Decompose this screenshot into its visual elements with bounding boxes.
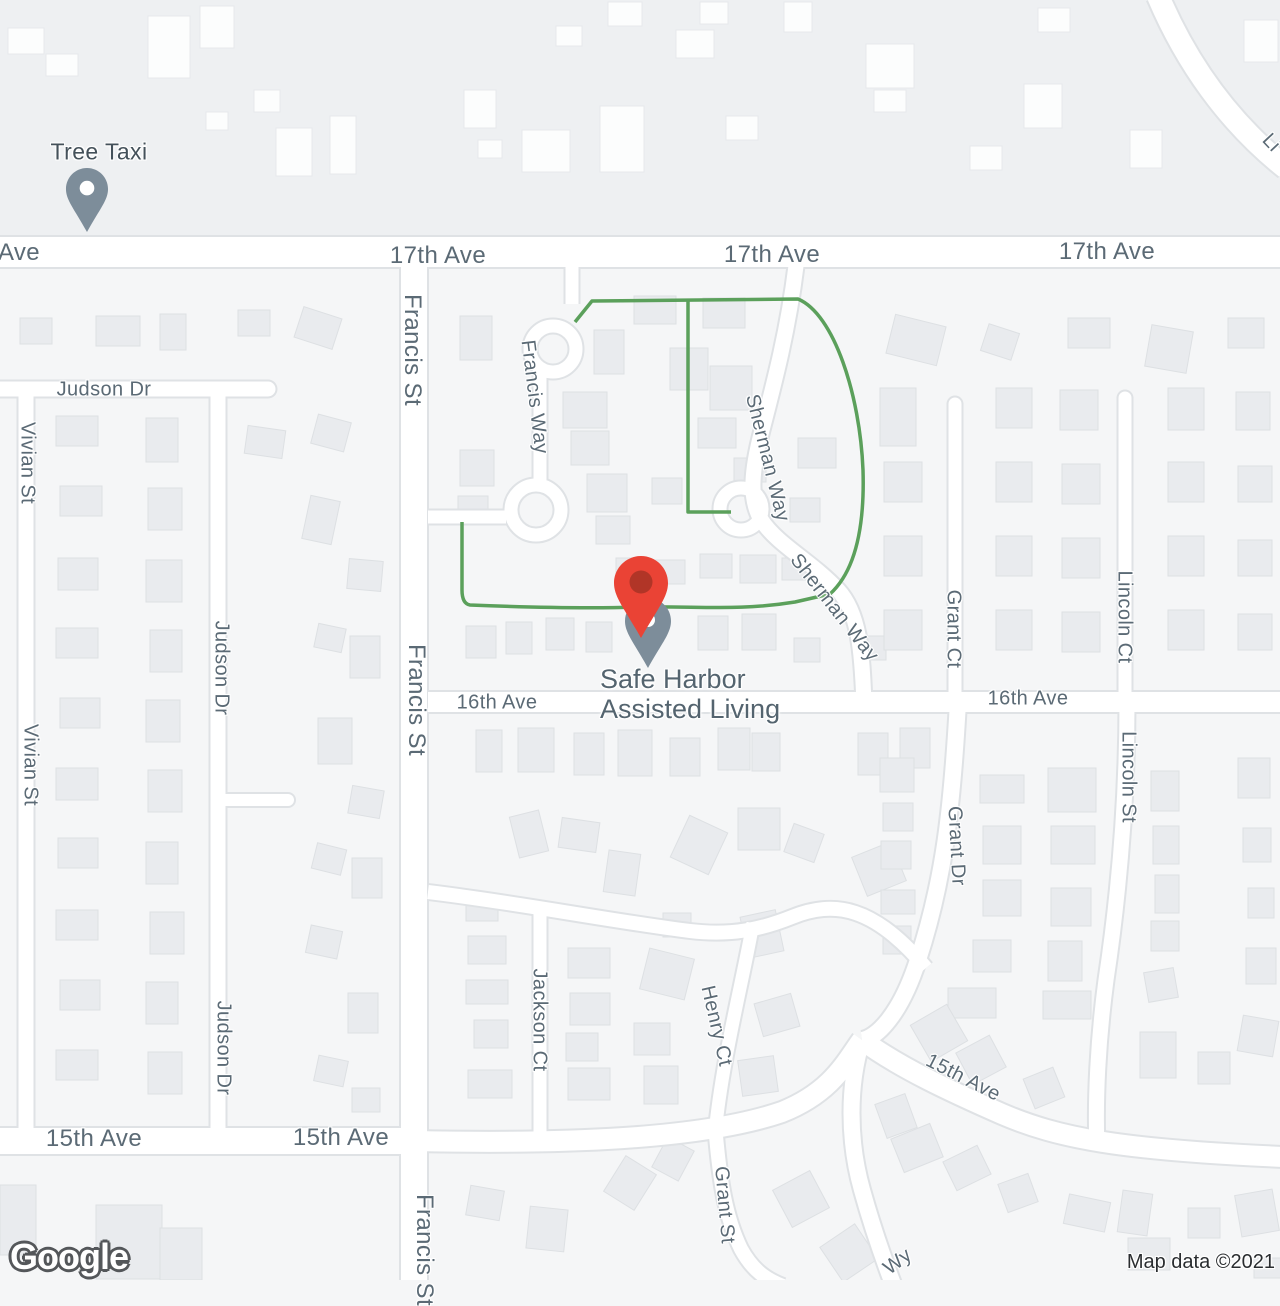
street-label-vivian-st: Vivian St [16, 422, 39, 504]
street-label-17th-ave: 17th Ave [390, 242, 486, 270]
map-canvas[interactable]: Ave 17th Ave 17th Ave 17th Ave Francis S… [0, 0, 1280, 1280]
street-label-lincoln-st: Lincoln St [1117, 731, 1140, 823]
tree-taxi-pin-icon[interactable] [65, 168, 109, 237]
street-label-judson-dr: Judson Dr [57, 379, 152, 402]
street-label-francis-st: Francis St [398, 294, 426, 406]
street-label-jackson-ct: Jackson Ct [528, 969, 551, 1072]
street-label-francis-st: Francis St [410, 1194, 438, 1306]
street-label-francis-st: Francis St [402, 644, 430, 756]
street-label-15th-ave: 15th Ave [293, 1124, 389, 1152]
street-label-17th-ave-partial: Ave [0, 239, 40, 267]
street-label-17th-ave: 17th Ave [1059, 238, 1155, 266]
street-label-judson-dr: Judson Dr [212, 1001, 235, 1096]
poi-label-tree-taxi[interactable]: Tree Taxi [51, 139, 148, 166]
street-label-vivian-st: Vivian St [19, 724, 42, 806]
google-logo[interactable]: Google [10, 1236, 128, 1278]
street-label-lincoln-ct: Lincoln Ct [1113, 571, 1136, 664]
place-name-line2: Assisted Living [600, 694, 780, 724]
street-label-15th-ave: 15th Ave [46, 1125, 142, 1153]
street-label-16th-ave: 16th Ave [988, 688, 1069, 711]
place-name[interactable]: Safe Harbor Assisted Living [600, 664, 780, 724]
street-label-judson-dr: Judson Dr [210, 621, 233, 716]
place-marker-pin-icon[interactable] [614, 556, 668, 643]
street-label-grant-dr: Grant Dr [942, 806, 969, 887]
place-name-line1: Safe Harbor [600, 664, 780, 694]
street-label-16th-ave: 16th Ave [457, 692, 538, 715]
street-label-grant-ct: Grant Ct [942, 590, 965, 669]
map-attribution: Map data ©2021 [1127, 1251, 1275, 1274]
street-label-17th-ave: 17th Ave [724, 241, 820, 269]
